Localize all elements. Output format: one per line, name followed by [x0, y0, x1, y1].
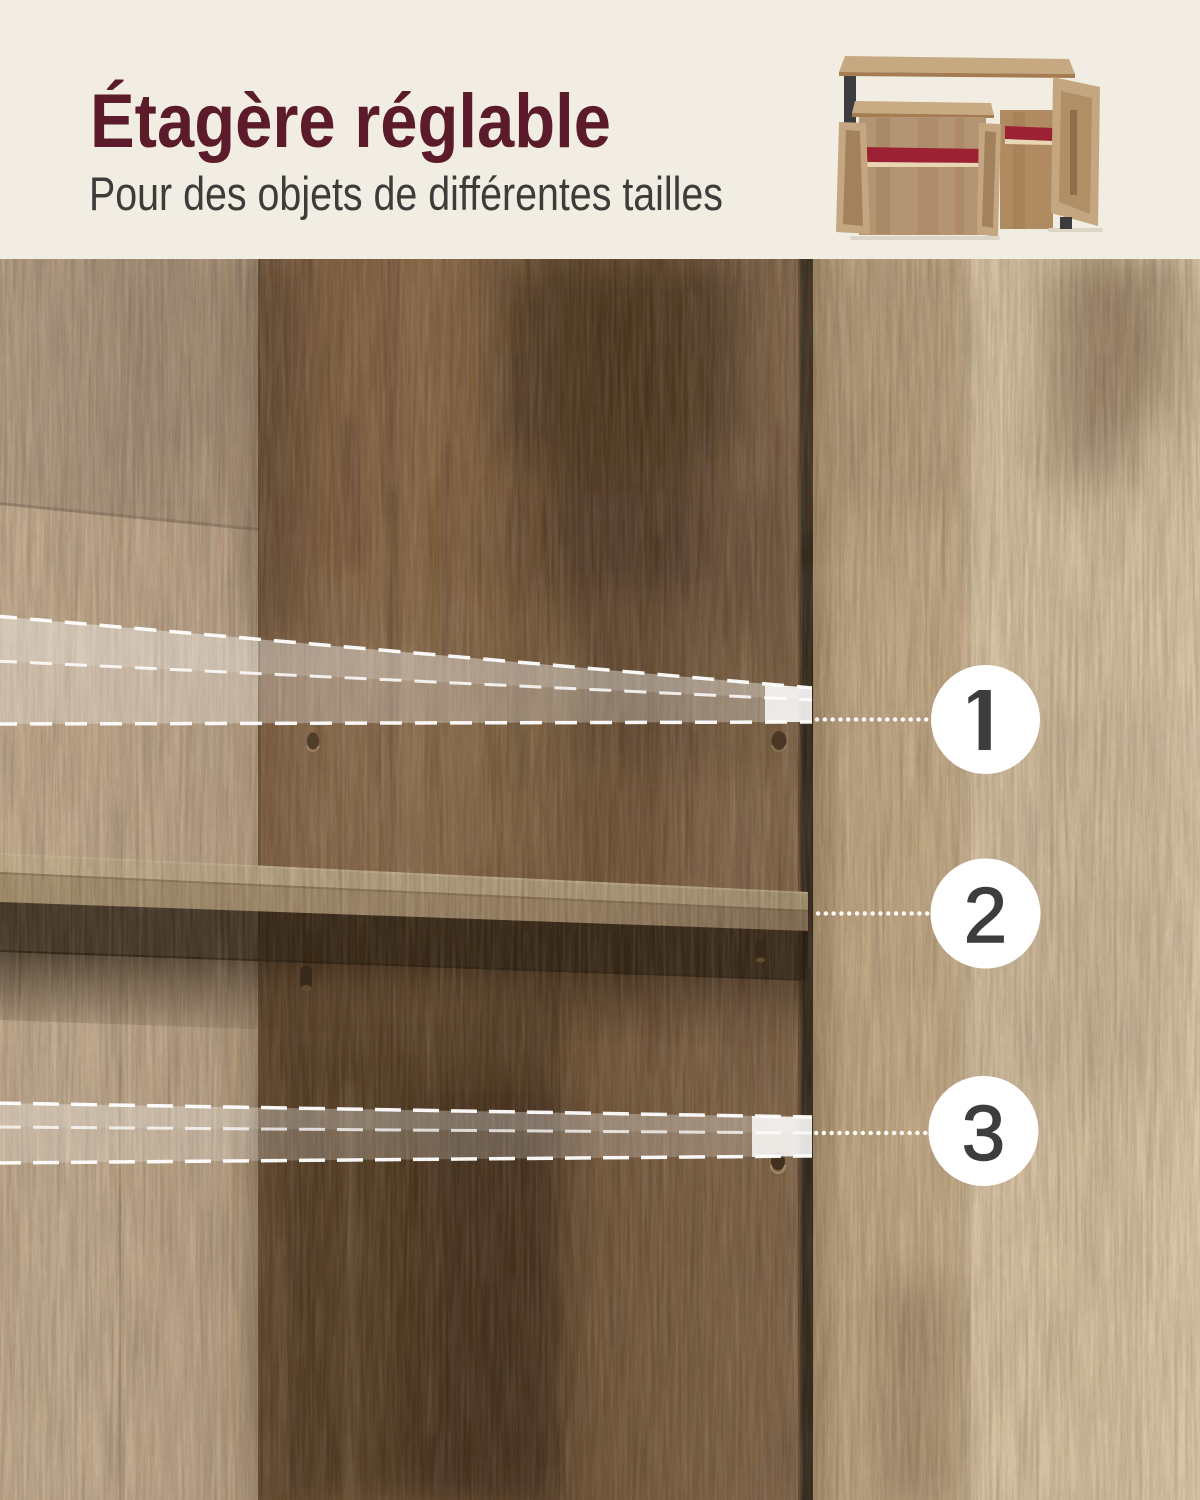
- svg-text:3: 3: [962, 1088, 1005, 1176]
- svg-text:2: 2: [964, 871, 1007, 959]
- svg-text:Pour des objets de différentes: Pour des objets de différentes tailles: [89, 167, 723, 220]
- svg-text:Étagère réglable: Étagère réglable: [90, 79, 611, 164]
